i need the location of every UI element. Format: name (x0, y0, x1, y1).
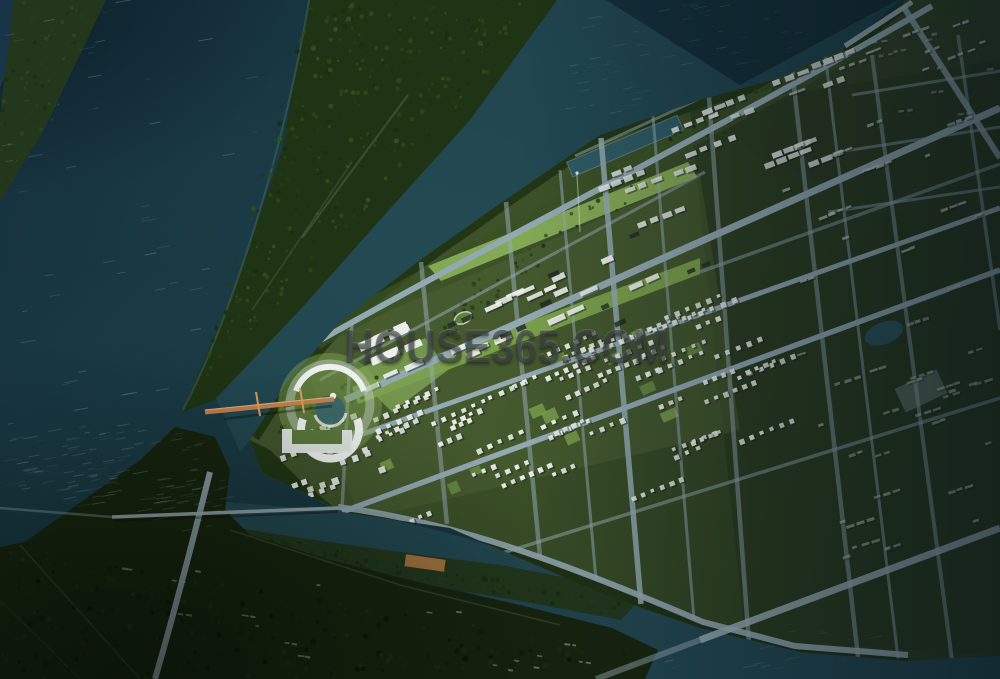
masterplan-canvas (0, 0, 1000, 679)
bottom-left-vignette (0, 0, 1000, 679)
masterplan-rendering: HOUSE365.COM (0, 0, 1000, 679)
